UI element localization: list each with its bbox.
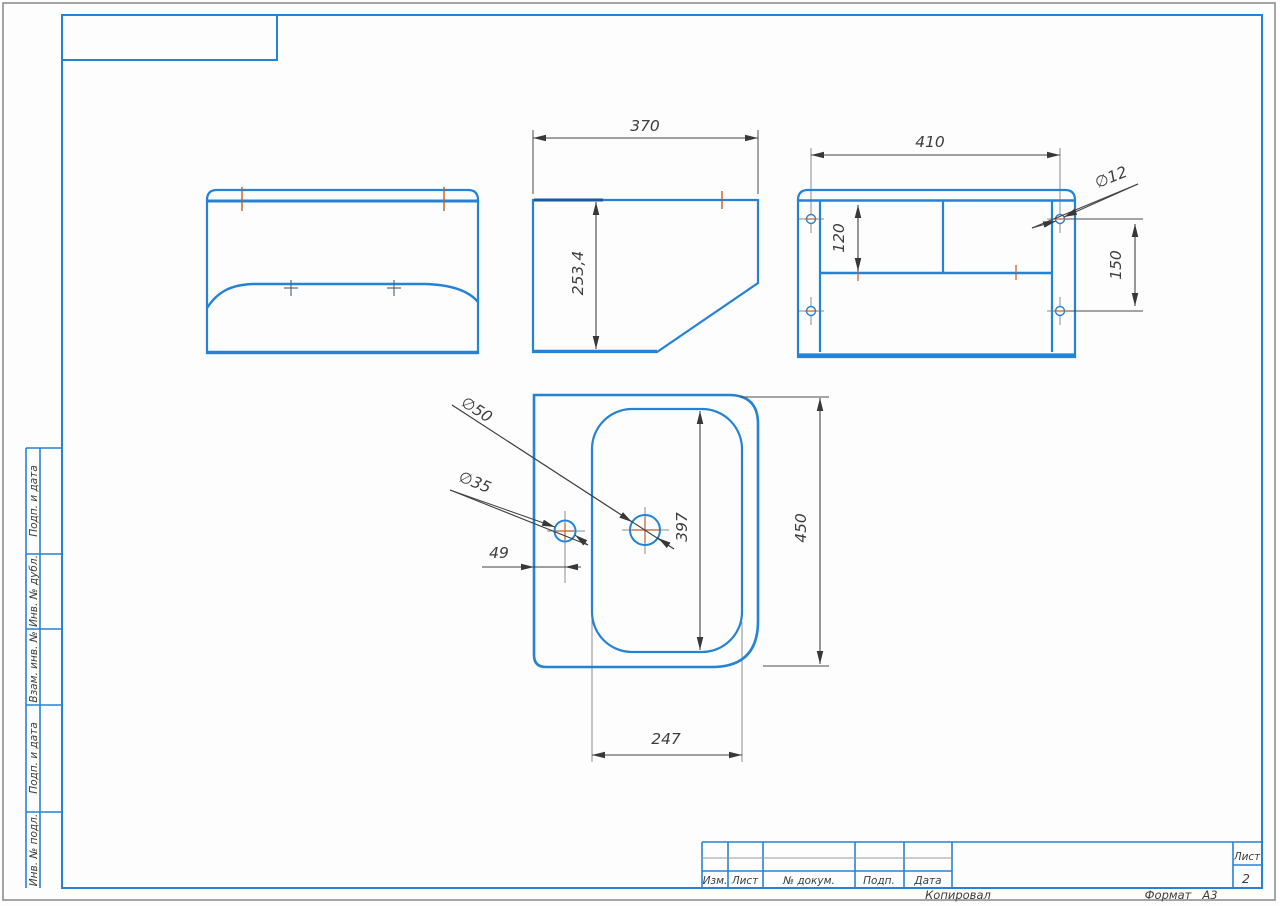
dim-410-value: 410	[915, 133, 945, 151]
dim-450-value: 450	[792, 513, 810, 543]
cad-drawing-canvas: Подп. и дата Инв. № дубл. Взам. инв. № П…	[0, 0, 1280, 906]
dim-150-extensions	[1066, 219, 1143, 311]
sidebar-label-podp-i-data-2: Подп. и дата	[28, 722, 40, 794]
dim-253-value: 253,4	[569, 251, 587, 295]
sidebar-stamp-labels: Подп. и дата Инв. № дубл. Взам. инв. № П…	[28, 465, 40, 886]
dim-370-extensions	[533, 130, 758, 194]
dim-49-value: 49	[489, 544, 509, 562]
front-view-outline	[207, 190, 478, 353]
title-col-ndokum: № докум.	[782, 875, 835, 887]
front-view-projected-hole-crosses	[284, 280, 401, 296]
back-view: 410 120 ∅12 150	[798, 133, 1143, 357]
copied-by-label: Копировал	[925, 888, 991, 902]
back-view-inner-panel-lines	[820, 200, 1052, 352]
title-block: Изм. Лист № докум. Подп. Дата Лист 2	[702, 842, 1262, 888]
sheet-number: 2	[1242, 871, 1250, 886]
sidebar-label-inv-n-dubl: Инв. № дубл.	[28, 555, 40, 627]
dim-450-extensions	[740, 397, 829, 666]
dim-370-value: 370	[630, 117, 660, 135]
sidebar-label-vzam-inv-n: Взам. инв. №	[28, 631, 40, 702]
title-col-data: Дата	[913, 875, 941, 887]
dim-dia12-value: ∅12	[1092, 163, 1130, 192]
dim-247-value: 247	[651, 730, 681, 748]
top-view: ∅50 ∅35 49 397 450 247	[450, 393, 829, 762]
drawing-frame	[62, 15, 1262, 888]
title-col-list: Лист	[731, 875, 759, 887]
format-value: А3	[1201, 888, 1217, 902]
dim-150-value: 150	[1107, 250, 1125, 280]
side-view-outline	[533, 200, 758, 352]
front-view-basin-edge	[207, 284, 478, 308]
sidebar-label-podp-i-data-1: Подп. и дата	[28, 465, 40, 537]
dim-397-value: 397	[673, 512, 691, 542]
corner-stamp-box	[62, 15, 277, 60]
title-col-podp: Подп.	[863, 875, 895, 887]
dim-dia35-value: ∅35	[456, 468, 494, 497]
sidebar-label-inv-n-podl: Инв. № подл.	[28, 814, 40, 886]
title-col-izm: Изм.	[703, 875, 728, 887]
format-label: Формат	[1145, 888, 1192, 902]
dim-49: 49	[482, 544, 581, 567]
side-view: 370 253,4	[533, 117, 758, 352]
dim-120-value: 120	[830, 223, 848, 253]
dia50-leader: ∅50	[452, 393, 674, 549]
drawing-sheet: Подп. и дата Инв. № дубл. Взам. инв. № П…	[0, 0, 1280, 906]
sheet-label: Лист	[1233, 851, 1261, 863]
dia12-leader: ∅12	[1032, 163, 1138, 228]
front-view	[207, 187, 478, 353]
